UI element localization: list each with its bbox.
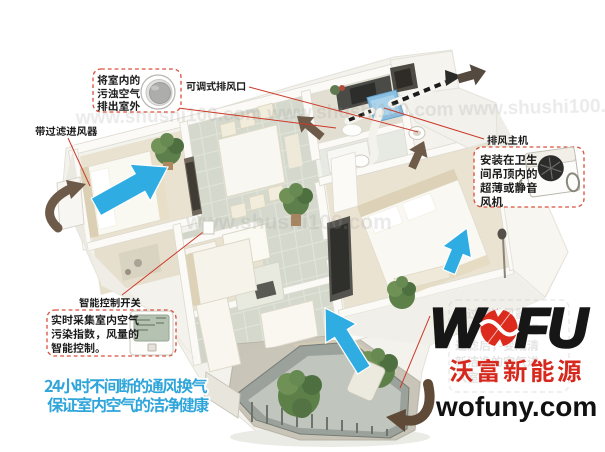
svg-text:wofuny.com: wofuny.com bbox=[435, 391, 597, 422]
svg-text:FU: FU bbox=[515, 296, 589, 359]
svg-text:www.shushi100.com: www.shushi100.com bbox=[185, 211, 392, 234]
svg-text:W: W bbox=[430, 296, 487, 359]
